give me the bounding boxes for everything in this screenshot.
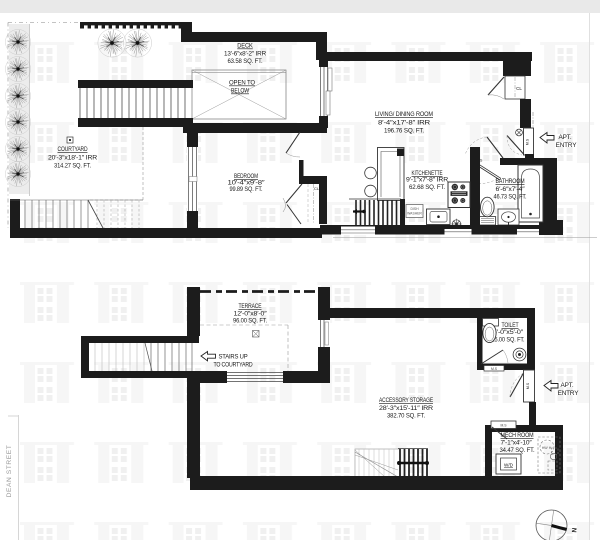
svg-text:APT.: APT. bbox=[561, 382, 574, 389]
svg-text:20′-3″x18′-1″ IRR: 20′-3″x18′-1″ IRR bbox=[48, 155, 98, 162]
svg-text:12′-0″x8′-0″: 12′-0″x8′-0″ bbox=[234, 311, 268, 318]
svg-text:WASHER: WASHER bbox=[407, 212, 422, 216]
svg-text:DECK: DECK bbox=[237, 43, 253, 50]
svg-text:MECH ROOM: MECH ROOM bbox=[501, 432, 534, 439]
svg-text:DISH: DISH bbox=[410, 207, 419, 211]
svg-text:314.27 SQ. FT.: 314.27 SQ. FT. bbox=[54, 163, 91, 170]
svg-text:CL: CL bbox=[314, 186, 320, 191]
svg-text:6′-6″x7′-4″: 6′-6″x7′-4″ bbox=[496, 186, 526, 193]
svg-text:M.S: M.S bbox=[526, 138, 530, 145]
svg-text:M.S: M.S bbox=[491, 367, 498, 371]
svg-text:9′-1″x7′-8″ IRR: 9′-1″x7′-8″ IRR bbox=[406, 177, 449, 184]
svg-text:99.89 SQ. FT.: 99.89 SQ. FT. bbox=[230, 186, 263, 193]
svg-text:M.S: M.S bbox=[526, 382, 530, 389]
svg-text:62.68 SQ. FT.: 62.68 SQ. FT. bbox=[409, 184, 445, 191]
svg-text:CL: CL bbox=[516, 86, 522, 91]
svg-text:STAIRS UP: STAIRS UP bbox=[219, 355, 248, 361]
svg-text:382.70 SQ. FT.: 382.70 SQ. FT. bbox=[387, 413, 425, 420]
svg-text:ENTRY: ENTRY bbox=[558, 390, 580, 397]
svg-text:W/D: W/D bbox=[504, 463, 514, 468]
svg-text:ACCESSORY STORAGE: ACCESSORY STORAGE bbox=[379, 397, 433, 404]
svg-text:TERRACE: TERRACE bbox=[239, 303, 262, 310]
svg-text:63.58 SQ. FT.: 63.58 SQ. FT. bbox=[228, 58, 263, 65]
svg-text:M.S: M.S bbox=[500, 424, 507, 428]
svg-text:28′-3″x15′-11″ IRR: 28′-3″x15′-11″ IRR bbox=[379, 405, 434, 412]
svg-text:TOILET: TOILET bbox=[502, 322, 519, 329]
svg-text:OPEN TO: OPEN TO bbox=[229, 80, 255, 87]
svg-text:25.00 SQ. FT.: 25.00 SQ. FT. bbox=[492, 337, 525, 344]
svg-text:13′-6″x8′-2″ IRR: 13′-6″x8′-2″ IRR bbox=[224, 51, 267, 58]
svg-text:ENTRY: ENTRY bbox=[556, 142, 578, 149]
svg-text:96.00 SQ. FT.: 96.00 SQ. FT. bbox=[233, 318, 267, 325]
svg-text:HW H: HW H bbox=[542, 446, 552, 450]
svg-text:APT.: APT. bbox=[559, 134, 572, 141]
svg-text:7′-1″x4′-10″: 7′-1″x4′-10″ bbox=[501, 440, 533, 447]
svg-text:46.73 SQ. FT.: 46.73 SQ. FT. bbox=[494, 194, 527, 201]
svg-text:8′-4″x17′-8″ IRR: 8′-4″x17′-8″ IRR bbox=[378, 120, 431, 127]
svg-text:DEAN STREET: DEAN STREET bbox=[6, 445, 13, 498]
svg-text:BATHROOM: BATHROOM bbox=[496, 178, 525, 185]
svg-text:N: N bbox=[570, 527, 577, 533]
svg-text:196.76 SQ. FT.: 196.76 SQ. FT. bbox=[384, 128, 424, 135]
svg-text:TO COURTYARD: TO COURTYARD bbox=[214, 363, 254, 369]
svg-text:BELOW: BELOW bbox=[231, 88, 249, 95]
svg-text:34.47 SQ. FT.: 34.47 SQ. FT. bbox=[500, 447, 535, 454]
svg-text:5′-0″x5′-0″: 5′-0″x5′-0″ bbox=[493, 329, 524, 336]
svg-text:COURTYARD: COURTYARD bbox=[58, 146, 88, 153]
svg-text:LIVING/ DINING ROOM: LIVING/ DINING ROOM bbox=[375, 111, 433, 118]
